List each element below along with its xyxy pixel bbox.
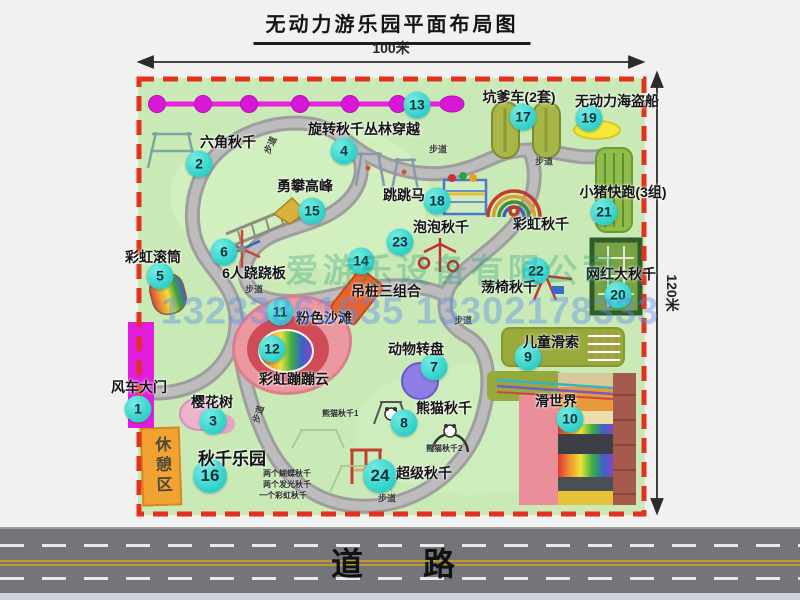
watermark-company: 爱游乐设备有限公司 (286, 244, 619, 292)
badge-20: 20 (605, 282, 632, 309)
badge-15: 15 (299, 198, 326, 225)
label-seesaw-6p: 6人跷跷板 (222, 263, 286, 283)
path-label-3: 步道 (535, 155, 553, 168)
label-swing-chair: 荡椅秋千 (481, 277, 537, 297)
swing-park-note-2: 两个发光秋千 (263, 479, 311, 490)
label-cherry-tree: 樱花树 (191, 392, 233, 412)
label-peak-climbing: 勇攀高峰 (277, 176, 333, 196)
label-kengdie-car: 坑爹车(2套) (482, 87, 555, 107)
label-rainbow-bounce-cloud: 彩虹蹦蹦云 (259, 369, 329, 389)
badge-14: 14 (348, 248, 375, 275)
label-slide-world: 滑世界 (535, 391, 577, 411)
path-label-2: 步道 (429, 143, 447, 156)
badge-13: 13 (404, 92, 431, 119)
badge-4: 4 (331, 138, 358, 165)
badge-23: 23 (387, 229, 414, 256)
label-rainbow-roller: 彩虹滚筒 (125, 247, 181, 267)
panda-note-2: 熊猫秋千2 (426, 443, 462, 454)
badge-8: 8 (391, 410, 418, 437)
badge-24: 24 (363, 459, 397, 493)
badge-21: 21 (591, 199, 618, 226)
label-jungle-crossing: 丛林穿越 (364, 119, 420, 139)
label-hex-swing: 六角秋千 (200, 132, 256, 152)
path-label-4: 步道 (245, 283, 263, 296)
path-label-7: 步道 (378, 492, 396, 505)
badge-12: 12 (259, 336, 286, 363)
label-animal-carousel: 动物转盘 (388, 339, 444, 359)
label-super-swing: 超级秋千 (396, 463, 452, 483)
below-road-strip (0, 593, 800, 600)
road-label: 道 路 (331, 539, 469, 585)
swing-park-note-1: 两个蝴蝶秋千 (263, 468, 311, 479)
screenshot-root: 无动力游乐园平面布局图 (0, 0, 800, 600)
label-bubble-swing: 泡泡秋千 (413, 217, 469, 237)
path-label-6: 步道 (249, 403, 267, 424)
label-rotating-swing: 旋转秋千 (308, 119, 364, 139)
panda-note-1: 熊猫秋千1 (322, 408, 358, 419)
label-pink-beach: 粉色沙滩 (296, 308, 352, 328)
label-big-net-swing: 网红大秋千 (586, 264, 656, 284)
path-label-5: 步道 (454, 314, 472, 327)
label-panda-swing: 熊猫秋千 (416, 398, 472, 418)
badge-6: 6 (211, 239, 238, 266)
label-swing-park: 秋千乐园 (198, 445, 266, 470)
road: 道 路 (0, 527, 800, 595)
dimension-width-label: 100米 (372, 38, 409, 58)
jumping-horse-icon (444, 172, 486, 214)
label-pirate-ship: 无动力海盗船 (575, 91, 659, 111)
badge-18: 18 (424, 188, 451, 215)
swing-park-note-3: 一个彩虹秋千 (259, 490, 307, 501)
dimension-height-label: 120米 (662, 274, 682, 311)
label-rainbow-swing: 彩虹秋千 (513, 214, 569, 234)
rest-area-label: 休憩区 (148, 436, 174, 497)
badge-11: 11 (267, 299, 294, 326)
peak-climbing-icon (226, 198, 306, 246)
badge-1: 1 (125, 396, 152, 423)
bubble-swing-icon (419, 238, 458, 272)
label-kids-zipline: 儿童滑索 (523, 332, 579, 352)
path-label-1: 步道 (260, 134, 279, 156)
label-piglet-run: 小猪快跑(3组) (579, 182, 666, 202)
label-windmill-gate: 风车大门 (111, 377, 167, 397)
badge-2: 2 (186, 151, 213, 178)
label-jumping-horse: 跳跳马 (383, 185, 425, 205)
label-hanging-piles: 吊桩三组合 (351, 281, 421, 301)
badge-17: 17 (510, 104, 537, 131)
